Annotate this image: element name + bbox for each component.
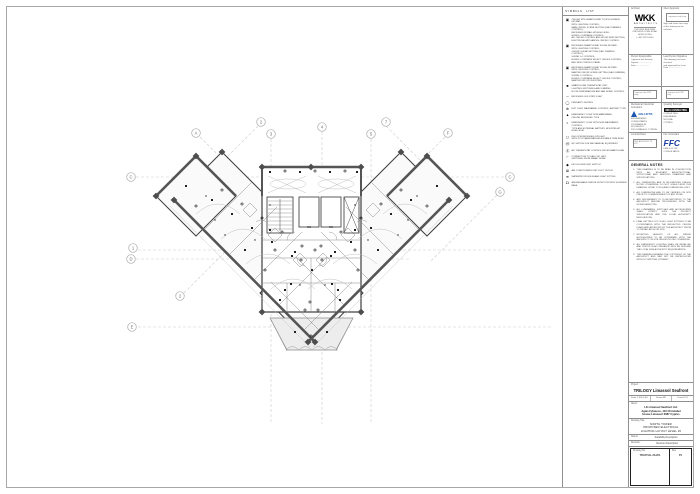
grid-bubble: E bbox=[128, 323, 137, 332]
electrical-symbol bbox=[185, 185, 187, 187]
drawing-title-block: Drawing Title: NORTH TOWER PROPOSED ELEC… bbox=[629, 419, 693, 435]
consultant-line: CYPRUS bbox=[664, 122, 692, 125]
signature-field: I approve this PDF copy bbox=[666, 90, 690, 99]
electrical-symbol bbox=[354, 229, 356, 231]
wkk-logo-sub: ARCHITECTS bbox=[634, 23, 656, 28]
scale-field: Scale 1:100 @ A1 bbox=[629, 396, 650, 401]
electrical-symbol bbox=[311, 269, 313, 271]
fire-consultant-box: Fire Consultant FFC FIRE & FLOW CONSULTA… bbox=[661, 133, 694, 160]
rev-value: P1 bbox=[672, 454, 689, 457]
legend-symbol-icon: ≋ bbox=[565, 176, 570, 180]
drawing-title-line: LIGHTING LAYOUT LEVEL 26 bbox=[631, 430, 691, 433]
general-notes: GENERAL NOTES 1.THIS DRAWING IS TO BE RE… bbox=[629, 161, 693, 383]
electrical-symbol bbox=[271, 241, 273, 243]
electrical-symbol bbox=[410, 199, 412, 201]
grid-bubble: 2 bbox=[257, 118, 266, 127]
legend-symbol-icon: ⌐ bbox=[565, 156, 570, 161]
qs-consultant-label: Quantity Surveyor bbox=[664, 104, 692, 107]
legend-item: ⓂMC SWITCH FOR MECHANICAL EQUIPMENT bbox=[565, 143, 627, 147]
electrical-symbol bbox=[377, 249, 379, 251]
qs-logo: MDA CONSULTING bbox=[664, 108, 690, 112]
electrical-symbol bbox=[279, 299, 281, 301]
legend-item-text: AIR CONDITIONING UNIT DUCT OUTLET bbox=[572, 170, 614, 174]
electrical-symbol bbox=[231, 213, 233, 215]
electrical-symbol bbox=[350, 241, 352, 243]
client-signature-field: signature and chop bbox=[666, 13, 690, 22]
local-architect-label: Local Architect bbox=[631, 134, 659, 137]
general-note: 9.THIS DRAWING REMAINS THE COPYRIGHT OF … bbox=[631, 254, 691, 262]
legend-item: ▣RECESSED SMART HOME 'FLUSH KEYPAD',WITH… bbox=[565, 67, 627, 83]
mep-consultant-name: MALLIOTIS bbox=[639, 113, 653, 116]
legend-header-left: SYMBOLS bbox=[565, 9, 582, 13]
mep-consultant-label: Mechanical / Electrical Consultant bbox=[631, 104, 659, 110]
legend-symbol-icon: ◯ bbox=[565, 102, 570, 106]
electrical-symbol bbox=[244, 249, 246, 251]
grid-bubble: 3 bbox=[267, 130, 276, 139]
legend-item: ⊕EXIT LIGHT MAINTAINED CONTROL, BATTERY … bbox=[565, 108, 627, 112]
svg-text:A: A bbox=[195, 131, 198, 136]
grid-bubble: F bbox=[444, 129, 453, 138]
date-field: Date 05.21 bbox=[671, 396, 693, 401]
revision-row: Revision: Revision Description bbox=[629, 441, 693, 447]
general-note: 3.ALL DIMENSIONS ARE TO BE VERIFIED ON S… bbox=[631, 192, 691, 197]
signature-field: I approve this PDF copy bbox=[633, 90, 657, 99]
lead-signature-box: Lead Person Signature This drawing has b… bbox=[661, 55, 694, 86]
triangle-logo-icon bbox=[631, 111, 637, 117]
project-name: TRILOGY Limassol Seafront bbox=[629, 387, 693, 396]
drawing-number-box: Drawing No. TRI-NT-EL-26-201 Rev P1 bbox=[630, 448, 692, 486]
grid-bubble: C bbox=[506, 173, 515, 182]
electrical-symbol bbox=[324, 284, 325, 285]
building-outline bbox=[156, 152, 467, 350]
electrical-symbol bbox=[214, 219, 215, 220]
electrical-symbol bbox=[331, 283, 333, 285]
electrical-symbol bbox=[354, 204, 355, 205]
electrical-symbol bbox=[299, 284, 300, 285]
approval-line: Date ..................... bbox=[631, 65, 659, 68]
legend-item: ☊ADDRESSABLE SMOKE DETECTOR WITH SOUNDER… bbox=[565, 182, 627, 187]
electrical-symbol bbox=[397, 234, 398, 235]
legend-item: ◯PENDANT LIGHTING bbox=[565, 102, 627, 106]
svg-text:C: C bbox=[129, 175, 132, 180]
ffc-logo: FFC bbox=[664, 139, 692, 148]
symbols-legend: SYMBOLS LIST ▣CEILING MTD SMART HOME 'TO… bbox=[563, 7, 629, 487]
legend-item-text: RECESSED LED STRIP LIGHT bbox=[572, 96, 603, 100]
electrical-symbol bbox=[367, 239, 368, 240]
legend-item-text: IN-FLOOR RECESSED UPLIGHT,WITH POLYCARBO… bbox=[572, 136, 624, 141]
legend-item-text: ADDRESSABLE SMOKE DETECTOR WITH SOUNDER … bbox=[572, 182, 628, 187]
legend-item: ⊠AIR CONDITIONING UNIT DUCT OUTLET bbox=[565, 170, 627, 174]
general-note: 6.FINAL SETTING OUT OF ALL LIGHT FITTING… bbox=[631, 221, 691, 232]
legend-item-text: EMERGENCY LIGHT WITH NON-MAINTAINED CONT… bbox=[572, 122, 628, 133]
grid-bubble: 2 bbox=[176, 292, 185, 301]
legend-items: ▣CEILING MTD SMART HOME 'TOUCH SCREEN' K… bbox=[563, 19, 628, 188]
legend-item: ◆KEY HOLDER UNIT SWITCH bbox=[565, 164, 627, 168]
client-approval-label: Client Approval bbox=[664, 8, 692, 11]
legend-item-text: A/C THERMOSTAT CONTROL FROM SMART HOME bbox=[572, 150, 625, 154]
general-note: 5.ALL LUMINAIRES, SWITCHES AND ACCESSORI… bbox=[631, 209, 691, 220]
status-label: Status: bbox=[631, 436, 638, 439]
electrical-symbol bbox=[339, 299, 341, 301]
svg-text:F: F bbox=[447, 131, 450, 136]
svg-text:C: C bbox=[508, 175, 511, 180]
svg-text:G: G bbox=[498, 190, 501, 195]
legend-item-text: RECESSED SMART HOME 'FLUSH KEYPAD',WITH … bbox=[572, 45, 628, 64]
legend-item: ▣CEILING MTD SMART HOME 'TOUCH SCREEN' K… bbox=[565, 19, 627, 43]
legend-symbol-icon: ☊ bbox=[565, 182, 570, 187]
qs-consultant-box: Quantity Surveyor MDA CONSULTING CONSULT… bbox=[661, 103, 694, 132]
legend-item: ⌐CONNECTION TO FAN COIL UNIT,SWITCHED FR… bbox=[565, 156, 627, 161]
grid-bubble: G bbox=[496, 188, 505, 197]
title-block: SYMBOLS LIST ▣CEILING MTD SMART HOME 'TO… bbox=[562, 7, 693, 487]
project-block: Project: TRILOGY Limassol Seafront Scale… bbox=[629, 383, 693, 487]
local-architect-box: Local Architect UDS ARCHITECTS LTD bbox=[629, 133, 661, 160]
legend-symbol-icon: Ⓜ bbox=[565, 143, 570, 147]
legend-item-text: SMART HOME THERMOSTAT UNIT,LIGHTING SWIT… bbox=[572, 85, 625, 93]
electrical-symbol bbox=[224, 234, 225, 235]
legend-symbol-icon: ─ bbox=[565, 96, 570, 100]
revision-label: Revision: bbox=[631, 442, 640, 445]
general-note: 7.MOUNTING HEIGHTS OF ALL WIRING ACCESSO… bbox=[631, 234, 691, 242]
legend-symbol-icon: Ⓢ bbox=[565, 150, 570, 154]
electrical-symbol bbox=[337, 289, 339, 291]
electrical-symbol bbox=[356, 171, 358, 173]
architect-address-line: t +852 2357 0000 bbox=[631, 37, 659, 40]
electrical-symbol bbox=[269, 229, 271, 231]
wkk-logo: WKK bbox=[631, 14, 659, 23]
electrical-symbol bbox=[291, 255, 293, 257]
drawn-field: Drawn MK bbox=[650, 396, 672, 401]
drawing-number-value: TRI-NT-EL-26-201 bbox=[633, 454, 667, 457]
legend-item-text: EXIT LIGHT MAINTAINED CONTROL, BATTERY T… bbox=[572, 108, 626, 112]
status-value: Suitability Description bbox=[641, 436, 691, 439]
legend-item-text: CONNECTION TO FAN COIL UNIT,SWITCHED FRO… bbox=[572, 156, 607, 161]
svg-text:D: D bbox=[129, 257, 132, 262]
electrical-symbol bbox=[329, 171, 331, 173]
grid-bubble: A bbox=[192, 129, 201, 138]
legend-header: SYMBOLS LIST bbox=[563, 7, 628, 16]
fire-consultant-label: Fire Consultant bbox=[664, 134, 692, 137]
person-responsible-box: Person Responsible I approve this drawin… bbox=[629, 55, 661, 86]
legend-item: ─RECESSED LED STRIP LIGHT bbox=[565, 96, 627, 100]
legend-item-text: EMERGENCY LIGHT NON-MAINTAINED,CEILING R… bbox=[572, 114, 613, 119]
electrical-symbol bbox=[290, 283, 292, 285]
title-block-right: Architect WKK ARCHITECTS 15/F WKK BUILDI… bbox=[629, 7, 693, 487]
grid-bubble: C bbox=[127, 173, 136, 182]
legend-symbol-icon: ■ bbox=[565, 85, 570, 93]
signature-box-left: I approve this PDF copy bbox=[629, 87, 661, 102]
approval-line: Date ..................... bbox=[664, 67, 692, 70]
general-note: 2.ALL DIMENSIONS ARE IN MILLIMETRES UNLE… bbox=[631, 182, 691, 190]
architect-label: Architect bbox=[631, 8, 659, 11]
drawing-number-label: Drawing No. bbox=[633, 450, 667, 453]
electrical-symbol bbox=[294, 251, 296, 253]
legend-item: ◐EMERGENCY LIGHT WITH NON-MAINTAINED CON… bbox=[565, 122, 627, 133]
legend-symbol-icon: ▣ bbox=[565, 45, 570, 64]
legend-symbol-icon: ◻ bbox=[565, 136, 570, 141]
grid-bubble: 1 bbox=[129, 244, 138, 253]
electrical-symbol bbox=[326, 331, 328, 333]
general-notes-list: 1.THIS DRAWING IS TO BE READ IN CONJUNCT… bbox=[631, 169, 691, 262]
general-note: 1.THIS DRAWING IS TO BE READ IN CONJUNCT… bbox=[631, 169, 691, 180]
legend-item-text: CEILING MTD SMART HOME 'TOUCH SCREEN' KE… bbox=[572, 19, 628, 43]
legend-item: ▲EMERGENCY LIGHT NON-MAINTAINED,CEILING … bbox=[565, 114, 627, 119]
legend-symbol-icon: ⊠ bbox=[565, 170, 570, 174]
electrical-symbol bbox=[251, 227, 253, 229]
electrical-symbol bbox=[211, 199, 213, 201]
legend-item: ⓈA/C THERMOSTAT CONTROL FROM SMART HOME bbox=[565, 150, 627, 154]
mep-consultant-box: Mechanical / Electrical Consultant MALLI… bbox=[629, 103, 661, 132]
electrical-symbol bbox=[330, 255, 332, 257]
grid-bubble: 5 bbox=[367, 130, 376, 139]
grid-bubble: 4 bbox=[318, 123, 327, 132]
client-block: Client: LK Limassol Seafront Ltd. Agias … bbox=[629, 402, 693, 419]
general-note: 8.ALL EMERGENCY LIGHTING SHALL BE INSTAL… bbox=[631, 244, 691, 252]
electrical-symbol bbox=[416, 195, 417, 196]
legend-symbol-icon: ⊕ bbox=[565, 108, 570, 112]
grid-bubble: 7 bbox=[382, 118, 391, 127]
electrical-symbol bbox=[407, 219, 408, 220]
legend-symbol-icon: ▣ bbox=[565, 19, 570, 43]
consultant-line: CONSULTANTS bbox=[664, 151, 692, 154]
svg-text:E: E bbox=[131, 325, 134, 330]
electrical-symbol bbox=[254, 239, 255, 240]
client-line: House Limassol 3087 Cyprus bbox=[631, 413, 691, 417]
legend-symbol-icon: ◆ bbox=[565, 164, 570, 168]
electrical-symbol bbox=[284, 289, 286, 291]
legend-item: ■SMART HOME THERMOSTAT UNIT,LIGHTING SWI… bbox=[565, 85, 627, 93]
general-note: 4.ANY DISCREPANCY IS TO BE REPORTED TO T… bbox=[631, 199, 691, 207]
legend-item-text: MC SWITCH FOR MECHANICAL EQUIPMENT bbox=[572, 143, 618, 147]
grid-bubble: D bbox=[127, 255, 136, 264]
legend-item-text: WATERPROOF BULKHEAD LIGHT FITTING bbox=[572, 176, 616, 180]
electrical-symbol bbox=[269, 171, 271, 173]
legend-item-text: RECESSED SMART HOME 'FLUSH KEYPAD',WITH … bbox=[572, 67, 626, 83]
rev-label: Rev bbox=[672, 450, 689, 453]
electrical-symbol bbox=[390, 213, 392, 215]
legend-item-text: KEY HOLDER UNIT SWITCH bbox=[572, 164, 601, 168]
legend-symbol-icon: ▣ bbox=[565, 67, 570, 83]
revision-value: Revision Description bbox=[643, 442, 691, 445]
rev-cell: Rev P1 bbox=[669, 449, 691, 485]
architect-box: Architect WKK ARCHITECTS 15/F WKK BUILDI… bbox=[629, 7, 661, 54]
legend-symbol-icon: ◐ bbox=[565, 122, 570, 133]
electrical-symbol bbox=[436, 185, 438, 187]
client-note-line: of this drawing to the architect bbox=[664, 26, 692, 32]
electrical-symbol bbox=[205, 195, 206, 196]
drawing-number-cell: Drawing No. TRI-NT-EL-26-201 bbox=[631, 449, 669, 485]
electrical-symbol bbox=[294, 331, 296, 333]
electrical-symbol bbox=[334, 251, 336, 253]
legend-header-right: LIST bbox=[586, 9, 594, 13]
client-approval-box: Client Approval signature and chop Sign … bbox=[661, 7, 694, 54]
legend-item: ◻IN-FLOOR RECESSED UPLIGHT,WITH POLYCARB… bbox=[565, 136, 627, 141]
electrical-symbol bbox=[299, 171, 301, 173]
legend-item-text: PENDANT LIGHTING bbox=[572, 102, 593, 106]
consultant-line: 3011 LIMASSOL CYPRUS bbox=[631, 129, 659, 132]
legend-item: ▣RECESSED SMART HOME 'FLUSH KEYPAD',WITH… bbox=[565, 45, 627, 64]
general-notes-title: GENERAL NOTES bbox=[631, 163, 691, 167]
electrical-symbol bbox=[269, 204, 270, 205]
legend-item: ≋WATERPROOF BULKHEAD LIGHT FITTING bbox=[565, 176, 627, 180]
legend-symbol-icon: ▲ bbox=[565, 114, 570, 119]
local-architect-logo: UDS ARCHITECTS LTD bbox=[633, 139, 657, 148]
signature-box-right: I approve this PDF copy bbox=[661, 87, 694, 102]
electrical-symbol bbox=[370, 227, 372, 229]
drawing-sheet: { "legend": { "header_left": "SYMBOLS", … bbox=[0, 0, 700, 494]
